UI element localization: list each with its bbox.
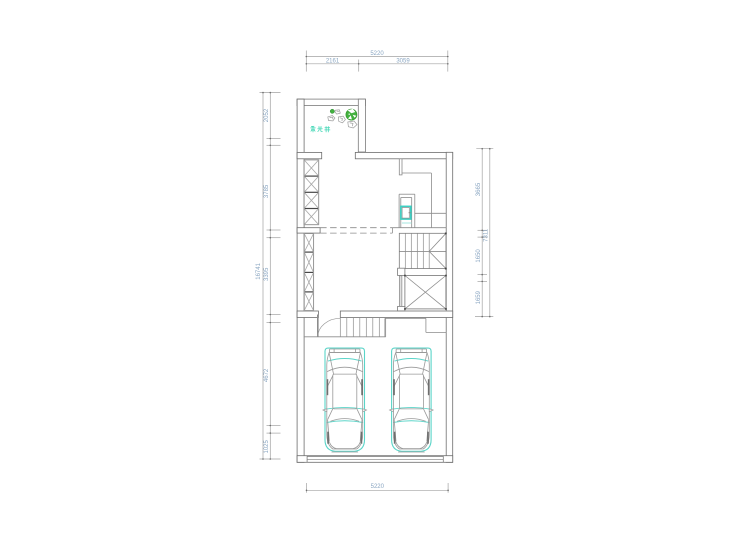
svg-text:1025: 1025 [264, 439, 270, 453]
svg-text:1650: 1650 [476, 249, 482, 263]
svg-text:1659: 1659 [476, 290, 482, 304]
svg-text:7311: 7311 [484, 228, 490, 242]
svg-text:2052: 2052 [264, 108, 270, 122]
svg-text:3665: 3665 [476, 182, 482, 196]
svg-text:4672: 4672 [264, 368, 270, 382]
svg-text:5220: 5220 [370, 51, 384, 57]
svg-text:2161: 2161 [326, 58, 340, 64]
svg-text:3785: 3785 [264, 184, 270, 198]
svg-text:3059: 3059 [396, 58, 410, 64]
svg-text:5220: 5220 [371, 484, 385, 490]
svg-text:16741: 16741 [256, 262, 262, 279]
svg-text:3395: 3395 [264, 267, 270, 281]
